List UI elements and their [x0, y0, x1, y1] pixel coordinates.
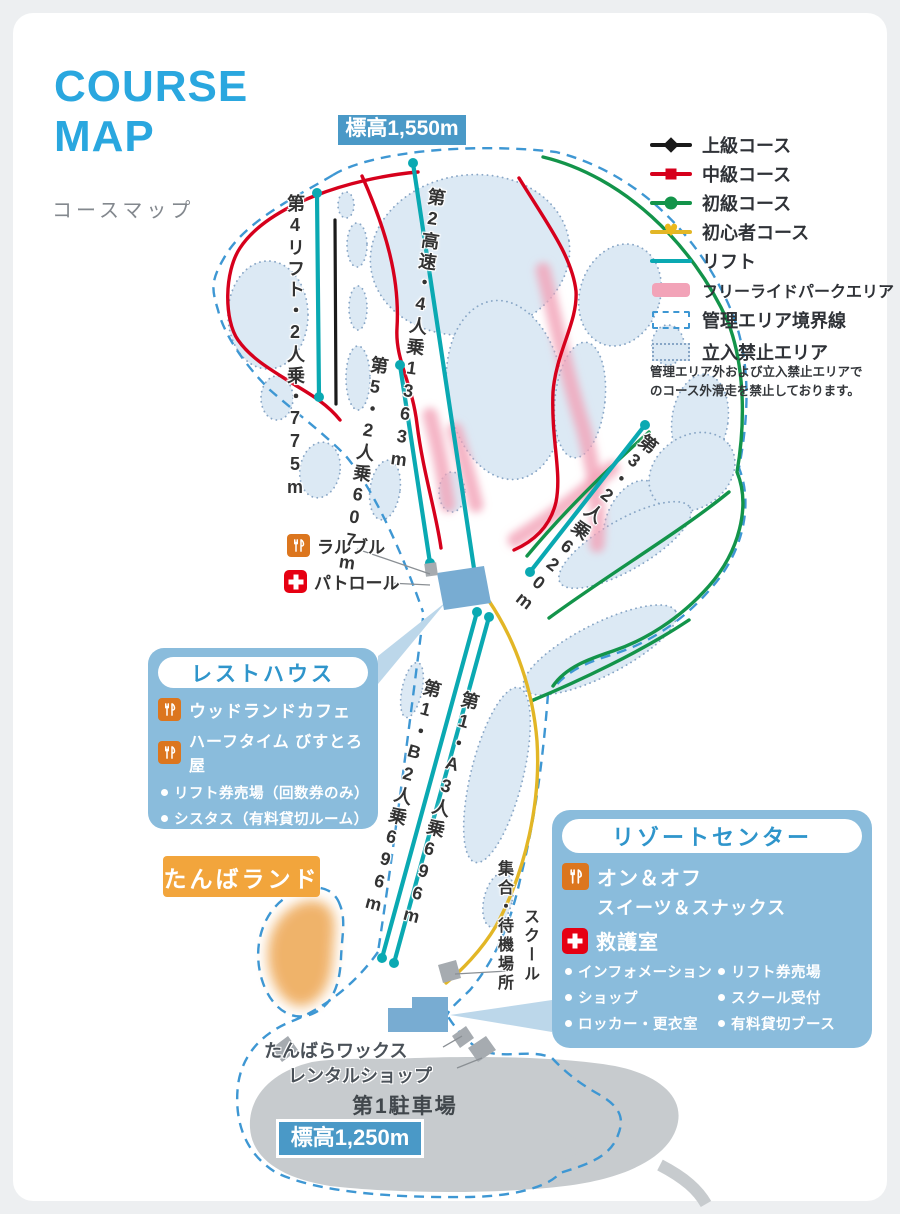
- resort-center-first-aid: 救護室: [552, 923, 872, 958]
- tanba-land-badge: たんばランド: [163, 856, 320, 897]
- parking-label: 第1駐車場: [352, 1090, 458, 1120]
- meeting-point-label: 集合・待機場所: [491, 860, 515, 993]
- no-entry-area-icon: [648, 343, 694, 361]
- first-aid-icon: [284, 570, 307, 593]
- advanced-course-line: [335, 220, 336, 404]
- advanced-course-icon: [648, 143, 694, 147]
- elevation-bottom-badge: 標高1,250m: [276, 1119, 424, 1158]
- rest-house-restaurant-1: ウッドランドカフェ: [148, 694, 378, 725]
- intermediate-course-icon: [648, 172, 694, 176]
- novice-course-icon: ♥: [648, 230, 694, 234]
- beginner-course-icon: [648, 201, 694, 205]
- lift-line-icon: [648, 259, 694, 263]
- legend-note: 管理エリア外および立入禁止エリアでのコース外滑走を禁止しております。: [650, 363, 885, 401]
- rc-bullet-left-2: ショップ: [552, 984, 714, 1010]
- tanba-land-area: [268, 901, 335, 1007]
- resort-center-bullets: インフォメーション ショップ ロッカー・更衣室 リフト券売場 スクール受付 有料…: [552, 958, 872, 1036]
- legend-intermediate: 中級コース: [648, 160, 888, 187]
- rest-house-box: レストハウス ウッドランドカフェ ハーフタイム びすとろ屋 リフト券売場（回数券…: [148, 648, 378, 829]
- legend-novice: ♥ 初心者コース: [648, 218, 888, 245]
- rest-house-bullet-1: リフト券売場（回数券のみ）: [148, 779, 378, 805]
- resort-center-restaurant: オン＆オフ: [552, 859, 872, 894]
- legend-beginner: 初級コース: [648, 189, 888, 216]
- rest-house-bullet-3: 喫煙所: [148, 831, 378, 857]
- restaurant-icon: [158, 741, 181, 764]
- resort-center-restaurant-line2: スイーツ＆スナックス: [552, 894, 872, 923]
- page-title: COURSEMAP: [54, 62, 248, 162]
- legend-advanced: 上級コース: [648, 131, 888, 158]
- legend: 上級コース 中級コース 初級コース ♥ 初心者コース リフト フリーライドパーク…: [648, 131, 888, 369]
- larbre-poi: ラルブル: [287, 533, 385, 558]
- rest-house-restaurant-2: ハーフタイム びすとろ屋: [148, 725, 378, 779]
- legend-boundary: 管理エリア境界線: [648, 305, 888, 335]
- lift4-label: 第4リフト・2人乗・775m: [282, 194, 308, 500]
- wax-shop-label-line1: たんばらワックス: [264, 1037, 407, 1063]
- resort-center-title: リゾートセンター: [562, 819, 862, 853]
- rc-bullet-right-1: リフト券売場: [714, 958, 835, 984]
- resort-center-box: リゾートセンター オン＆オフ スイーツ＆スナックス 救護室 インフォメーション …: [552, 810, 872, 1048]
- rest-house-bullet-2: シスタス（有料貸切ルーム）: [148, 805, 378, 831]
- rc-bullet-right-3: 有料貸切ブース: [714, 1010, 835, 1036]
- restaurant-icon: [562, 863, 589, 890]
- rc-bullet-left-1: インフォメーション: [552, 958, 714, 984]
- elevation-top-badge: 標高1,550m: [338, 115, 466, 145]
- boundary-line-icon: [648, 311, 694, 329]
- wax-shop-label-line2: レンタルショップ: [288, 1062, 432, 1088]
- legend-freeride: フリーライドパークエリア: [648, 276, 888, 303]
- restaurant-icon: [287, 534, 310, 557]
- patrol-poi: パトロール: [284, 569, 400, 594]
- school-label: スクール: [517, 908, 541, 984]
- restaurant-icon: [158, 698, 181, 721]
- first-aid-icon: [562, 928, 588, 954]
- rc-bullet-right-2: スクール受付: [714, 984, 835, 1010]
- rc-bullet-left-3: ロッカー・更衣室: [552, 1010, 714, 1036]
- freeride-area-icon: [648, 283, 694, 297]
- rest-house-title: レストハウス: [158, 657, 368, 688]
- page-subtitle: コースマップ: [52, 194, 194, 223]
- legend-lift: リフト: [648, 247, 888, 274]
